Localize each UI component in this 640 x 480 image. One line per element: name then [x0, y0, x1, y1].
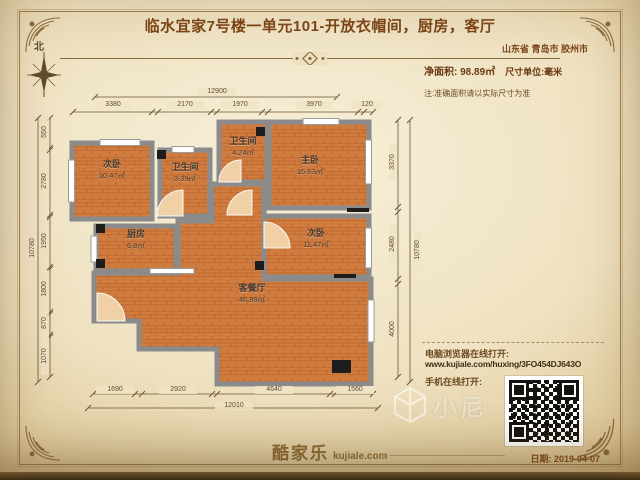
dim-right-overall: 10780 [414, 231, 422, 269]
unit-label: 尺寸单位:毫米 [505, 67, 562, 77]
bottom-shadow [0, 472, 640, 480]
room-label-master: 主卧15.63㎡ [270, 155, 350, 177]
room-label-kitchen: 厨房6.8㎡ [96, 229, 176, 251]
dim-right-seg: 3370 [389, 143, 397, 181]
compass-north-label: 北 [34, 38, 44, 53]
wall-bar [347, 208, 369, 212]
shaft [256, 127, 265, 136]
divider-ornament-icon [293, 52, 327, 65]
logo-domain-text: kujiale.com [333, 451, 387, 462]
room-label-bedroom-right: 次卧11.47㎡ [276, 228, 356, 250]
page-title: 临水宜家7号楼一单元101-开放衣帽间，厨房，客厅 [0, 15, 640, 36]
window [100, 140, 140, 146]
shaft [332, 360, 351, 373]
net-area-line: 净面积: 98.89㎡尺寸单位:毫米 [424, 63, 562, 78]
dim-right-seg: 2480 [389, 225, 397, 263]
dim-left-seg: 1070 [41, 337, 49, 375]
dim-bottom-overall: 12010 [215, 402, 253, 410]
room-label-bedroom-left: 次卧10.47㎡ [72, 159, 152, 181]
date-text: 日期: 2019-04-07 [478, 452, 600, 465]
dim-bottom-seg: 1560 [336, 386, 374, 394]
shaft [157, 150, 166, 159]
window [366, 140, 372, 184]
room-label-bath-small: 卫生间3.39㎡ [150, 162, 220, 184]
window [368, 300, 374, 342]
window [303, 119, 339, 125]
qr-finder-icon [509, 380, 529, 400]
compass-icon [27, 52, 61, 97]
window [172, 147, 194, 153]
room-label-living-dining: 客餐厅46.89㎡ [212, 283, 292, 305]
net-area-value: 净面积: 98.89㎡ [424, 67, 495, 78]
logo-cn-text: 酷家乐 [272, 444, 329, 463]
qr-finder-icon [509, 422, 529, 442]
location-text: 山东省 青岛市 胶州市 [502, 42, 588, 55]
shaft [255, 261, 264, 270]
dim-left-seg: 1950 [41, 222, 49, 260]
accuracy-note: 注:准确面积请以实际尺寸为准 [424, 88, 530, 99]
plan-url: www.kujiale.com/huxing/3FO454DJ643O [425, 359, 581, 369]
room-label-bath-large: 卫生间4.24㎡ [208, 136, 278, 158]
floorplan-poster: 临水宜家7号楼一单元101-开放衣帽间，厨房，客厅 山东省 青岛市 胶州市 净面… [0, 0, 640, 480]
dim-top-seg: 2170 [166, 101, 204, 109]
opening [150, 269, 194, 274]
dim-left-seg: 550 [41, 113, 49, 151]
dim-top-seg: 120 [352, 101, 382, 109]
dim-top-seg: 3380 [94, 101, 132, 109]
dim-left-seg: 1800 [41, 270, 49, 308]
dim-right-seg: 4000 [389, 310, 397, 348]
window [366, 228, 372, 268]
wall-bar [334, 274, 356, 278]
kujiale-logo: 酷家乐kujiale.com [272, 439, 387, 464]
dim-top-seg: 3970 [295, 101, 333, 109]
info-divider [422, 342, 604, 343]
dim-bottom-seg: 2920 [159, 386, 197, 394]
qr-code [505, 376, 583, 446]
room-bedroom-left [72, 143, 152, 219]
mobile-open-label: 手机在线打开: [425, 375, 482, 388]
qr-finder-icon [559, 380, 579, 400]
shaft [96, 259, 105, 268]
dim-bottom-seg: 1690 [96, 386, 134, 394]
corner-ornament-bottom-left [26, 426, 60, 460]
dim-top-seg: 1970 [221, 101, 259, 109]
dim-left-overall: 10780 [29, 229, 37, 267]
dim-bottom-seg: 4640 [255, 386, 293, 394]
dim-left-seg: 2780 [41, 162, 49, 200]
dim-top-overall: 12900 [198, 88, 236, 96]
